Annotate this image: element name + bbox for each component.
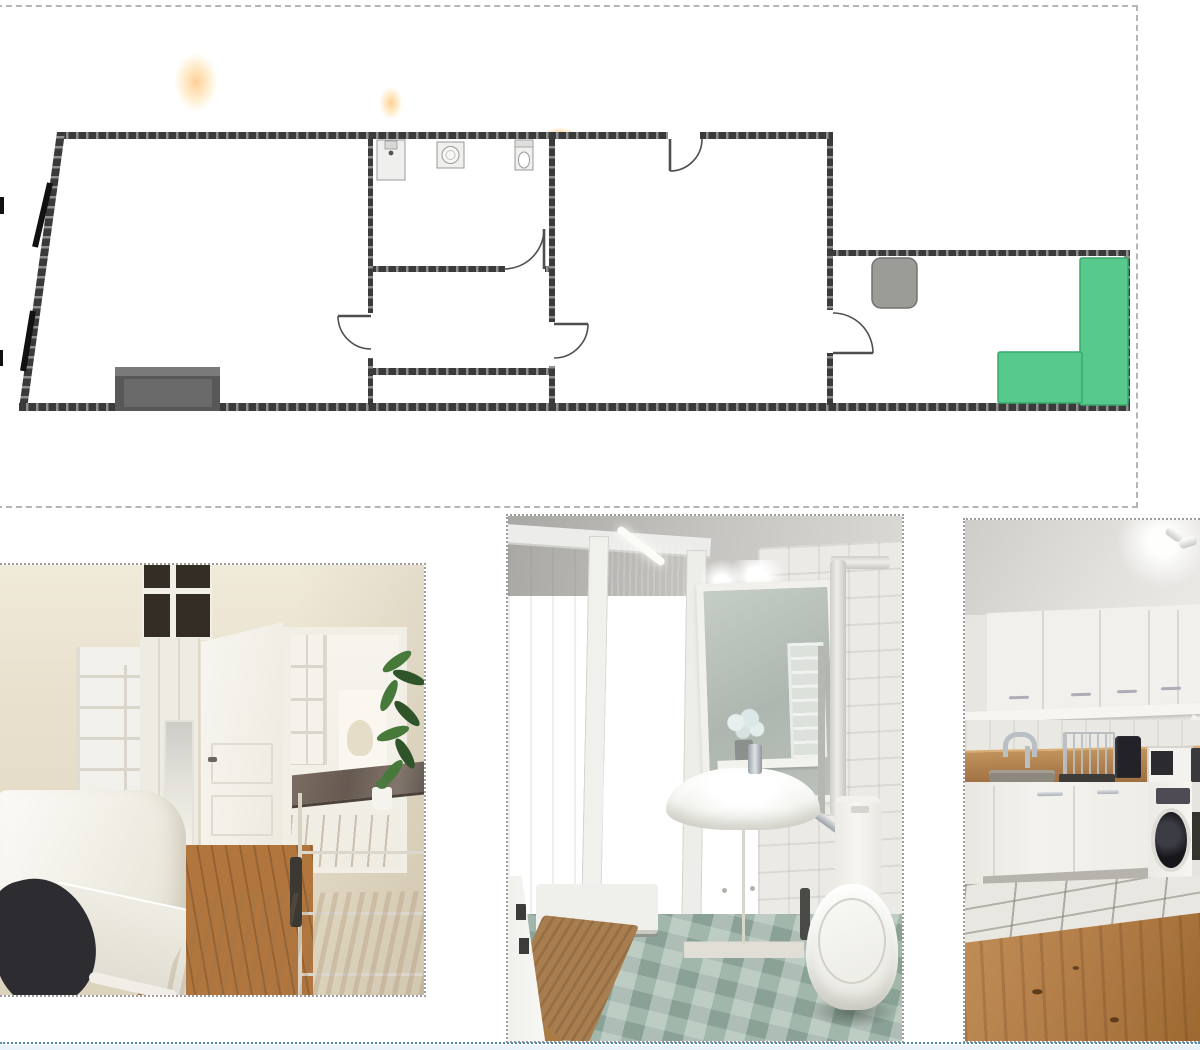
sink-symbol <box>377 140 405 180</box>
cabinet-handle <box>1009 696 1029 700</box>
washer-controls <box>1156 788 1190 804</box>
window-muntin <box>170 565 176 637</box>
plant <box>370 650 426 800</box>
cabinet-knob <box>750 886 755 891</box>
ceiling <box>965 520 1200 620</box>
toilet-symbol <box>515 140 533 170</box>
window-symbols <box>23 183 50 371</box>
cabinet-seam <box>742 828 745 944</box>
window-sill-mark <box>0 197 4 214</box>
faucet <box>1003 732 1037 757</box>
coffee-machine <box>1115 736 1141 778</box>
washing-machine <box>1148 782 1192 886</box>
cabinet-knob <box>722 888 727 893</box>
door-symbols <box>338 139 873 358</box>
pot-plant <box>376 779 388 789</box>
side-cabinet <box>1192 782 1200 886</box>
inner-walls <box>368 139 833 405</box>
kitchen-counter-symbol <box>998 258 1128 405</box>
cabinet-handle <box>1071 693 1091 697</box>
toilet-bowl <box>806 884 898 1010</box>
pipe <box>830 560 846 815</box>
cabinet-handle <box>1097 790 1119 794</box>
door-panel <box>211 795 273 836</box>
cabinet-handle <box>1037 792 1063 796</box>
small-appliance <box>1191 748 1200 782</box>
window-sill-mark <box>0 350 3 366</box>
cabinet-seam <box>1099 610 1101 710</box>
french-door <box>291 635 327 765</box>
transom-window <box>142 565 212 640</box>
door-handle <box>208 757 217 762</box>
cabinet-handle <box>1117 690 1137 694</box>
shower-inner-wall <box>508 526 592 918</box>
door-panel <box>211 743 273 784</box>
bed-symbol <box>115 367 220 411</box>
upper-cabinets <box>965 604 1200 716</box>
cabinet-seam <box>1177 610 1179 710</box>
door-hinge <box>516 904 526 920</box>
cabinet-seam <box>993 786 995 884</box>
door-hinge <box>519 938 529 954</box>
cabinet-gap <box>1192 812 1200 860</box>
sink <box>989 770 1055 782</box>
flush-button <box>851 806 869 813</box>
kitchen-appliance-symbol <box>872 258 917 308</box>
bottom-light-strip <box>0 1045 1200 1050</box>
cabinet-seam <box>1148 610 1150 710</box>
bathroom-photo[interactable] <box>506 514 904 1043</box>
orange-smudges <box>174 52 576 141</box>
faucet <box>748 744 762 774</box>
window-muntin <box>144 588 210 594</box>
microwave <box>1147 746 1193 784</box>
faucet-stem <box>1025 746 1030 768</box>
plant-pot <box>372 787 392 810</box>
toilet-seat <box>818 898 886 984</box>
vanity-cabinet <box>684 822 804 958</box>
washer-door <box>1151 808 1191 872</box>
bedroom-photo[interactable] <box>0 563 426 997</box>
shower-glass <box>600 543 691 920</box>
washing-machine-symbol <box>437 142 464 168</box>
kitchen-photo[interactable] <box>963 518 1200 1043</box>
microwave-window <box>1151 751 1173 775</box>
cabinet-seam <box>1042 610 1044 710</box>
cabinet-seam <box>1073 786 1075 884</box>
bottom-dotted-rule <box>0 1042 1200 1044</box>
floorplan-drawing <box>0 0 1140 510</box>
thin-pipe <box>818 646 825 814</box>
